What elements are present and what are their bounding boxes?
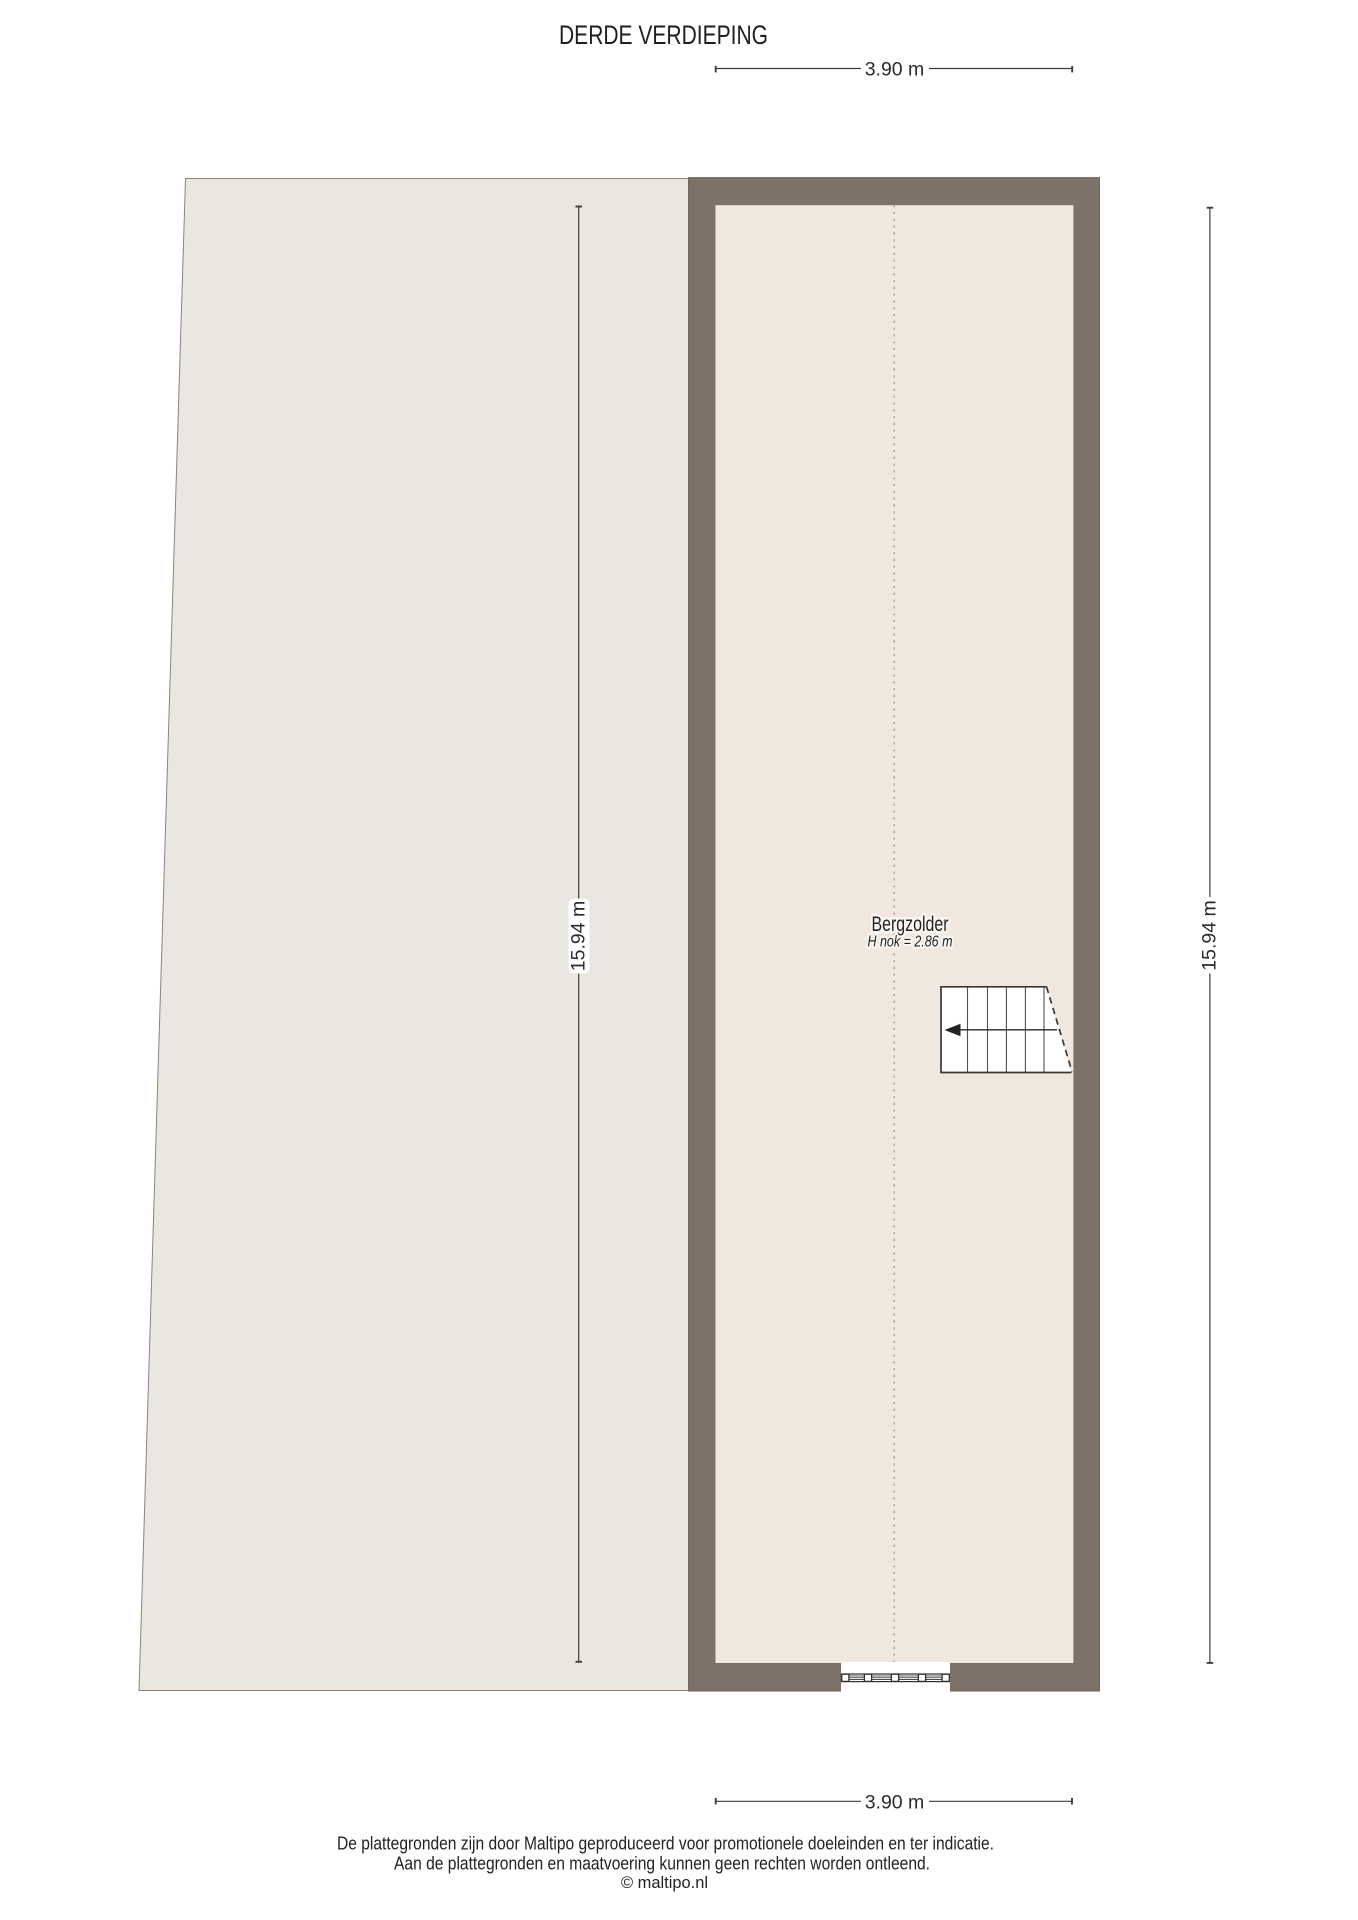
svg-text:© maltipo.nl: © maltipo.nl bbox=[621, 1873, 708, 1892]
svg-text:15.94 m: 15.94 m bbox=[568, 901, 590, 971]
svg-text:De plattegronden zijn door Mal: De plattegronden zijn door Maltipo gepro… bbox=[337, 1833, 994, 1854]
svg-text:Aan de plattegronden en maatvo: Aan de plattegronden en maatvoering kunn… bbox=[394, 1853, 930, 1874]
svg-text:H nok = 2.86 m: H nok = 2.86 m bbox=[868, 934, 953, 951]
svg-text:3.90 m: 3.90 m bbox=[865, 1792, 925, 1814]
svg-text:15.94 m: 15.94 m bbox=[1199, 900, 1221, 970]
svg-text:DERDE VERDIEPING: DERDE VERDIEPING bbox=[559, 20, 768, 50]
svg-text:3.90 m: 3.90 m bbox=[865, 59, 925, 81]
